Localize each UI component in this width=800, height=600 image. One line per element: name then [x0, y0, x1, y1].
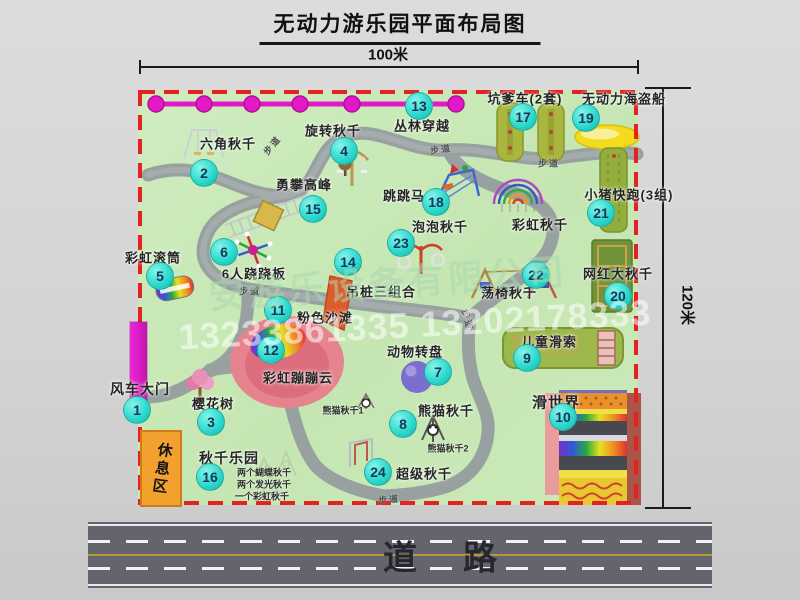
seesaw-spinner-icon	[234, 232, 273, 269]
slide-world-icon	[545, 390, 641, 505]
rest-area: 休息区	[140, 430, 182, 507]
panda-swing-icon	[422, 416, 444, 442]
hanging-piles-icon	[323, 276, 352, 330]
hexagon-swing-icon	[184, 130, 224, 158]
dimension-tick	[139, 60, 141, 74]
page-title: 无动力游乐园平面布局图	[260, 8, 541, 45]
pink-beach-icon	[230, 316, 344, 408]
park-layout-poster: 无动力游乐园平面布局图 100米 120米	[0, 0, 800, 600]
animal-carousel-icon	[401, 361, 433, 393]
swing-park-sketch-icon	[256, 452, 296, 494]
rainbow-drum-icon	[154, 274, 196, 302]
dimension-tick	[645, 507, 691, 509]
pirate-ship-icon	[575, 125, 639, 149]
road-label: 道路	[383, 531, 543, 580]
rest-area-label: 休息区	[147, 440, 175, 496]
road-edge-line	[88, 584, 712, 586]
park-map-art	[138, 90, 638, 505]
panda-swing-icon	[358, 394, 374, 409]
piggy-run-icon	[600, 148, 627, 232]
road-edge-line	[88, 524, 712, 526]
road: 道路	[88, 522, 712, 588]
dimension-line-right	[662, 88, 664, 508]
dimension-tick	[645, 87, 691, 89]
tree-icon	[339, 158, 352, 177]
dimension-line-top	[140, 66, 638, 68]
jumping-horse-icon	[437, 164, 479, 200]
big-swing-icon	[592, 240, 632, 312]
kids-zipline-icon	[503, 328, 623, 368]
dimension-tick	[637, 60, 639, 74]
windmill-gate	[130, 322, 147, 414]
super-swing-icon	[350, 439, 372, 467]
dimension-label-width: 100米	[368, 44, 408, 65]
bubble-swing-icon	[398, 245, 444, 274]
zipline-course-icon	[148, 96, 464, 112]
dimension-label-height: 120米	[678, 285, 699, 325]
park-map	[138, 90, 638, 505]
